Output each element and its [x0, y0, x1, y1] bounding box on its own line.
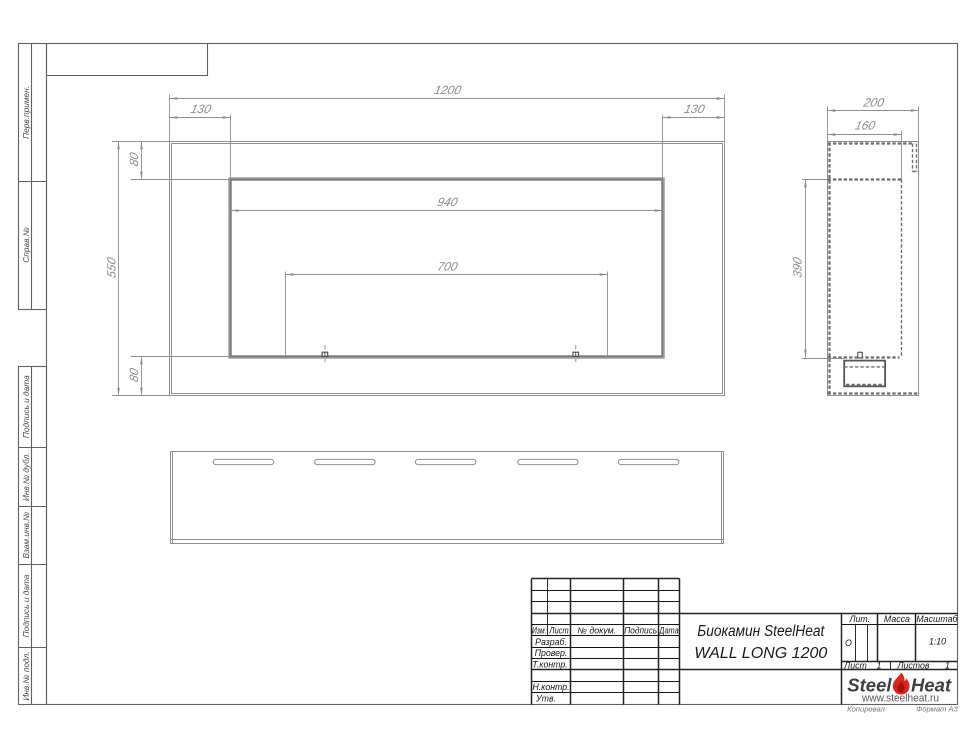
svg-text:940: 940	[436, 195, 459, 209]
svg-text:www.steelheat.ru: www.steelheat.ru	[861, 693, 939, 705]
svg-text:Т.контр.: Т.контр.	[532, 659, 568, 669]
svg-text:О: О	[845, 638, 852, 648]
svg-text:Лист: Лист	[548, 625, 568, 635]
svg-text:Перв.примен.: Перв.примен.	[21, 86, 31, 139]
svg-text:550: 550	[105, 256, 119, 279]
svg-text:130: 130	[189, 102, 212, 116]
svg-text:1: 1	[945, 660, 950, 670]
svg-text:Листов: Листов	[896, 660, 929, 670]
svg-text:Изм.: Изм.	[532, 625, 547, 635]
svg-text:700: 700	[436, 259, 459, 273]
svg-text:Подпись и дата: Подпись и дата	[21, 574, 31, 637]
svg-text:Справ.№: Справ.№	[21, 227, 31, 262]
svg-text:Подпись: Подпись	[624, 625, 657, 635]
svg-text:Разраб.: Разраб.	[535, 637, 567, 647]
svg-text:1:10: 1:10	[929, 637, 946, 647]
svg-text:Масштаб: Масштаб	[916, 614, 958, 624]
svg-text:Дата: Дата	[658, 625, 678, 635]
svg-text:1: 1	[877, 660, 882, 670]
svg-text:390: 390	[791, 256, 805, 279]
svg-text:160: 160	[854, 119, 877, 133]
svg-text:Инв.№ дубл.: Инв.№ дубл.	[21, 452, 31, 501]
svg-text:Масса: Масса	[884, 614, 910, 624]
svg-text:Биокамин SteelHeat: Биокамин SteelHeat	[697, 623, 825, 640]
svg-text:Инв.№ подл.: Инв.№ подл.	[21, 651, 31, 700]
svg-text:WALL LONG 1200: WALL LONG 1200	[694, 645, 827, 662]
svg-text:200: 200	[861, 95, 885, 109]
svg-text:Провер.: Провер.	[535, 648, 568, 658]
svg-text:Лит.: Лит.	[848, 614, 870, 624]
svg-text:Взам.инв.№: Взам.инв.№	[21, 512, 31, 559]
svg-text:№ докум.: № докум.	[577, 625, 616, 635]
svg-text:Формат А3: Формат А3	[916, 705, 958, 714]
svg-text:Лист: Лист	[843, 660, 867, 670]
svg-text:Н.контр.: Н.контр.	[532, 682, 569, 692]
svg-text:130: 130	[683, 102, 706, 116]
svg-text:1200: 1200	[433, 83, 463, 97]
svg-text:Подпись и дата: Подпись и дата	[21, 375, 31, 438]
svg-text:Копировал: Копировал	[847, 705, 885, 714]
svg-text:Утв.: Утв.	[535, 694, 556, 704]
